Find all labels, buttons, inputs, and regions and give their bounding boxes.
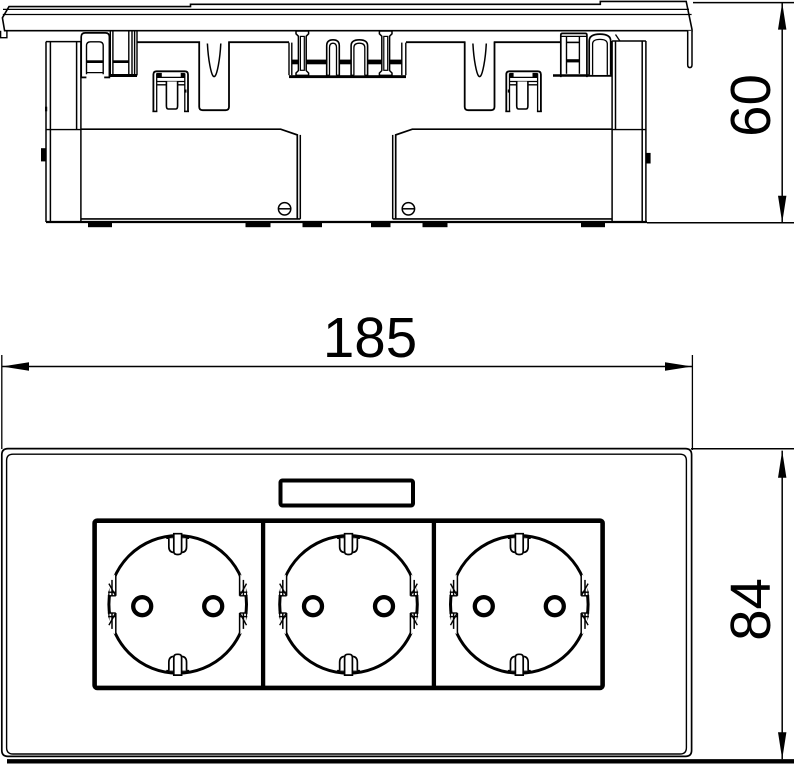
svg-text:84: 84	[719, 578, 782, 641]
svg-text:185: 185	[323, 306, 417, 369]
svg-text:60: 60	[719, 74, 782, 137]
